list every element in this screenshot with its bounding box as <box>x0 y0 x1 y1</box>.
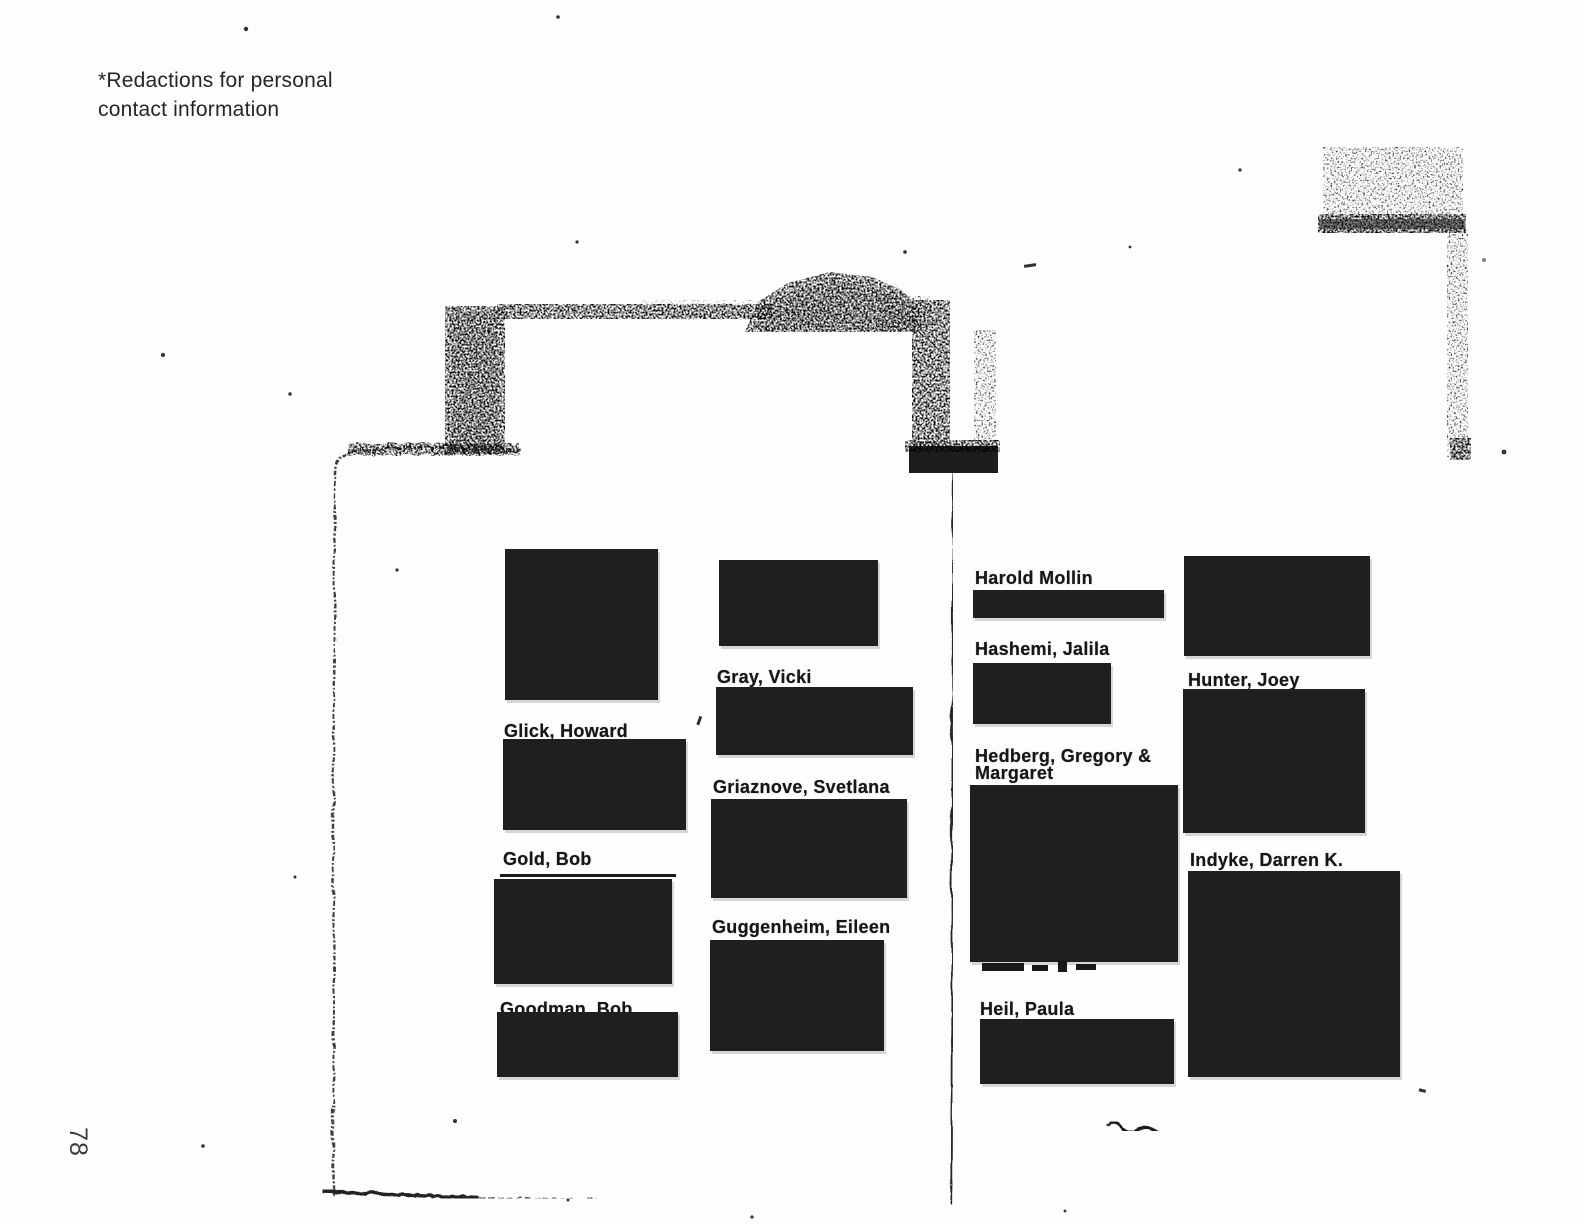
entry-label-hashemi-jalila: Hashemi, Jalila <box>975 640 1110 658</box>
scanned-document-page: *Redactions for personal contact informa… <box>0 0 1584 1224</box>
page-edge-lines <box>332 442 520 1196</box>
redaction-box <box>973 590 1164 618</box>
bottom-edge-line <box>320 1190 596 1198</box>
redaction-box <box>1183 689 1365 833</box>
redaction-box <box>1184 556 1370 656</box>
entry-label-indyke-darren-k: Indyke, Darren K. <box>1190 851 1343 869</box>
redaction-box <box>711 799 907 898</box>
entry-label-glick-howard: Glick, Howard <box>504 722 628 740</box>
redaction-box <box>980 1019 1174 1084</box>
smudge-top-center <box>445 272 920 454</box>
redaction-box <box>710 940 884 1051</box>
entry-label-hunter-joey: Hunter, Joey <box>1188 671 1300 689</box>
redaction-box <box>1188 871 1400 1077</box>
redaction-box <box>716 687 913 755</box>
redaction-note-line1: *Redactions for personal <box>98 66 333 95</box>
entry-label-gray-vicki: Gray, Vicki <box>717 668 812 686</box>
redaction-box <box>719 560 878 646</box>
redaction-box <box>505 549 658 700</box>
clipped-text-remnant <box>1058 961 1067 972</box>
clipped-text-remnant <box>1032 965 1048 971</box>
entry-label-gold-bob: Gold, Bob <box>503 850 592 868</box>
redaction-box <box>973 663 1111 724</box>
entry-label-griaznove-svetlana: Griaznove, Svetlana <box>713 778 890 796</box>
ink-squiggle <box>1106 1122 1155 1131</box>
clipped-text-remnant <box>982 963 1024 971</box>
redaction-box <box>970 785 1178 962</box>
entry-label-hedberg-line2: Margaret <box>975 764 1053 782</box>
redaction-box <box>503 739 686 830</box>
page-number: 78 <box>36 1122 92 1162</box>
page-divider-line <box>950 468 952 1203</box>
redaction-box <box>494 879 672 984</box>
underline-mark <box>500 874 676 877</box>
redaction-note-line2: contact information <box>98 95 333 124</box>
redaction-note: *Redactions for personal contact informa… <box>98 66 333 124</box>
entry-label-guggenheim-eileen: Guggenheim, Eileen <box>712 918 890 936</box>
entry-label-heil-paula: Heil, Paula <box>980 1000 1074 1018</box>
redaction-box <box>497 1012 678 1077</box>
clipped-text-remnant <box>1076 964 1096 970</box>
smudge-gutter <box>880 296 1000 473</box>
smudge-top-right <box>1318 147 1486 460</box>
entry-label-harold-mollin: Harold Mollin <box>975 569 1093 587</box>
